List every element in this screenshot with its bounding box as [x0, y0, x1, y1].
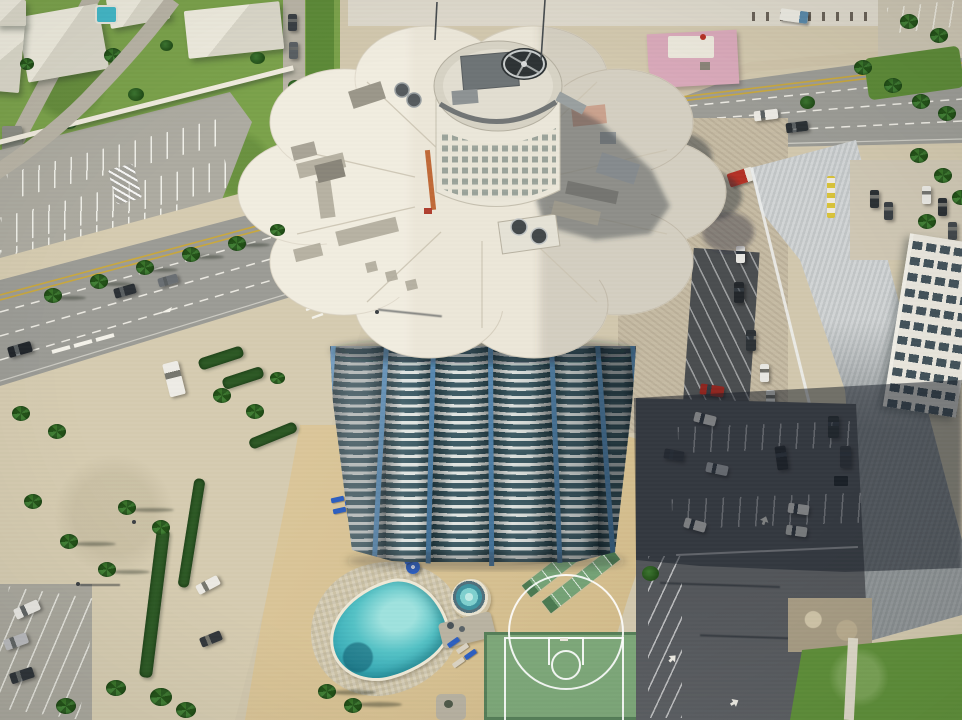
palm-tree	[60, 534, 78, 549]
car	[870, 190, 879, 208]
palm-shadow	[330, 690, 376, 695]
palm-tree	[182, 247, 200, 262]
car	[736, 246, 745, 263]
palm-tree	[176, 702, 196, 718]
rooftop-unit	[700, 62, 710, 70]
palm-tree	[900, 14, 918, 29]
hoop	[560, 638, 568, 641]
palm-tree	[98, 562, 116, 577]
car	[884, 202, 893, 220]
shrub	[642, 566, 659, 581]
shrub	[800, 96, 815, 109]
palm-tree	[270, 372, 285, 384]
palm-shadow	[72, 542, 116, 546]
pavilion-arches	[752, 12, 870, 21]
aerial-photo	[0, 0, 962, 720]
parking-stripes	[0, 586, 96, 719]
tower-lighting-gradient	[330, 346, 636, 568]
palm-tree	[136, 260, 154, 275]
palm-tree	[318, 684, 336, 699]
tower-cast-shadow	[630, 370, 962, 575]
palm-tree	[270, 224, 285, 236]
street-sign	[700, 34, 706, 40]
car	[760, 364, 769, 382]
palm-tree	[854, 60, 872, 75]
palm-tree	[48, 424, 66, 439]
streetlight-shadow	[80, 584, 120, 586]
palm-tree	[150, 688, 172, 706]
palm-tree	[934, 168, 952, 183]
palm-tree	[90, 274, 108, 289]
patio-table	[459, 626, 465, 632]
palm-tree	[228, 236, 246, 251]
palm-tree	[246, 404, 264, 419]
palm-tree	[12, 406, 30, 421]
car	[948, 222, 957, 240]
car	[922, 186, 931, 204]
construction-debris	[788, 598, 872, 652]
palm-tree	[213, 388, 231, 403]
rubble-lot	[545, 0, 653, 54]
palm-tree	[118, 500, 136, 515]
barrier-striped	[827, 176, 835, 218]
car	[734, 282, 744, 303]
palm-tree	[44, 288, 62, 303]
car	[746, 330, 756, 351]
pink-building-roof	[668, 36, 714, 58]
free-throw-circle	[551, 650, 581, 680]
car	[938, 198, 947, 216]
palm-shadow	[110, 570, 150, 574]
streetlight	[375, 310, 379, 314]
palm-tree	[344, 698, 362, 713]
patio-table	[447, 622, 454, 629]
palm-tree	[910, 148, 928, 163]
palm-tree	[152, 520, 170, 535]
palm-tree	[912, 94, 930, 109]
planter	[444, 700, 453, 708]
palm-shadow	[356, 702, 402, 707]
palm-tree	[56, 698, 76, 714]
palm-shadow	[130, 508, 174, 512]
palm-tree	[918, 214, 936, 229]
tower-facade	[330, 346, 636, 568]
palm-tree	[938, 106, 956, 121]
palm-tree	[24, 494, 42, 509]
palm-tree	[930, 28, 948, 43]
palm-tree	[884, 78, 902, 93]
streetlight	[132, 520, 136, 524]
basketball-court	[484, 632, 640, 720]
palm-tree	[106, 680, 126, 696]
